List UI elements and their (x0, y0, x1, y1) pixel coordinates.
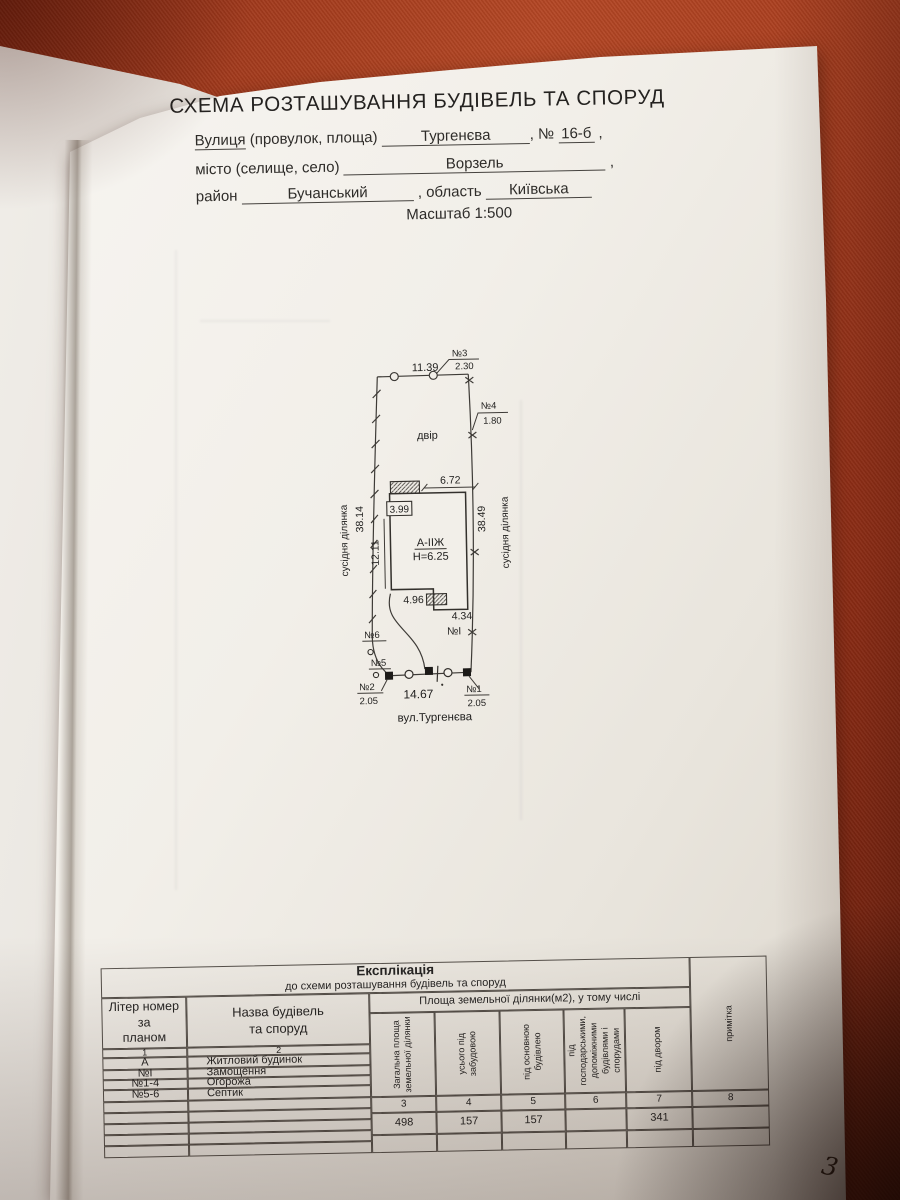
col-header-main-building: під основною будівлею (499, 1009, 565, 1094)
empty-cell (566, 1130, 627, 1149)
col-number: 7 (626, 1091, 692, 1108)
porch-top (390, 481, 419, 494)
value-yard: 341 (626, 1107, 692, 1130)
marker-3: №3 2.30 (436, 348, 479, 374)
table-title: Експлікація (356, 963, 434, 979)
page-title: СХЕМА РОЗТАШУВАННЯ БУДІВЕЛЬ ТА СПОРУД (82, 84, 752, 121)
document-content: СХЕМА РОЗТАШУВАННЯ БУДІВЕЛЬ ТА СПОРУД Ву… (82, 76, 773, 1169)
explication-table: Експлікація до схеми розташування будіве… (101, 956, 771, 1159)
empty-cell (693, 1128, 770, 1147)
dim-bottom-right-wing: 4.34 (452, 610, 473, 622)
dim-building-top: 6.72 (421, 474, 478, 491)
comma: , (610, 153, 614, 170)
dim-top: 11.39 (412, 362, 439, 375)
col-header-note: примітка (689, 956, 769, 1091)
svg-text:2.05: 2.05 (359, 696, 378, 707)
district-label: район (196, 188, 238, 206)
svg-text:№2: №2 (359, 682, 375, 693)
comma: , (598, 125, 602, 142)
dim-annex: 3.99 (390, 504, 410, 515)
paving-label: №I (447, 625, 461, 637)
city-value: Ворзель (344, 152, 606, 175)
empty-cell (104, 1145, 189, 1159)
building-height-label: Н=6.25 (413, 551, 449, 564)
marker-2: №2 2.05 (357, 680, 388, 708)
svg-text:№3: №3 (452, 348, 468, 359)
street-line: Вулиця (провулок, площа) Тургенєва, № 16… (83, 122, 753, 153)
city-label: місто (селище, село) (195, 159, 340, 179)
value-main-building: 157 (501, 1109, 565, 1132)
value-built-total: 157 (436, 1111, 501, 1134)
building-label: А-ІІЖ (417, 537, 445, 550)
col-number: 6 (565, 1092, 626, 1109)
gate-circle (390, 373, 398, 381)
value-total-area: 498 (371, 1112, 436, 1135)
empty-cell (189, 1141, 372, 1157)
street-label-rest: (провулок, площа) (245, 129, 377, 149)
site-plan-drawing: 11.39 №3 2.30 №4 1.80 двір 3.99 А (315, 335, 567, 734)
region-label: , область (418, 183, 482, 201)
empty-cell (372, 1134, 437, 1153)
col-number: 3 (371, 1096, 436, 1113)
street-name-label: вул.Тургенєва (397, 711, 472, 724)
region-value: Київська (486, 180, 592, 200)
value-outbuildings (565, 1108, 626, 1131)
col-number: 4 (436, 1095, 501, 1112)
building: 3.99 А-ІІЖ Н=6.25 (386, 480, 467, 610)
number-prefix: , № (530, 125, 555, 142)
city-line: місто (селище, село) Ворзель , (83, 150, 753, 181)
dim-bottom-left-wing: 4.96 (403, 594, 424, 606)
svg-text:№1: №1 (466, 684, 482, 695)
street-value: Тургенєва (382, 126, 530, 147)
empty-cell (627, 1129, 693, 1148)
svg-text:12.11: 12.11 (369, 540, 381, 566)
col-header-built-total: усього під забудовою (434, 1011, 501, 1096)
svg-text:№5: №5 (371, 658, 387, 669)
col-header-total-area: Загальна площа земельної ділянки (369, 1012, 436, 1097)
house-number-value: 16-б (558, 125, 594, 144)
street-fence (385, 665, 471, 687)
svg-text:№4: №4 (481, 401, 497, 412)
col-header-name: Назва будівель та споруд (186, 993, 370, 1048)
svg-text:2.05: 2.05 (467, 698, 486, 709)
marker-1: №1 2.05 (464, 676, 490, 709)
col-header-liter: Літер номер за планом (101, 997, 187, 1050)
col-number: 5 (501, 1093, 565, 1110)
col-header-outbuildings: під господарськими, допоміжними будівлям… (563, 1008, 626, 1093)
dim-right-boundary: 38.49 (476, 506, 489, 533)
neighbor-right-label: сусідня ділянка (500, 496, 512, 568)
empty-cell (437, 1133, 502, 1152)
yard-label: двір (417, 430, 438, 442)
col-header-yard: під двором (624, 1007, 692, 1092)
fence-ticks-left (365, 390, 385, 623)
empty-cell (502, 1131, 566, 1150)
street-label-underlined: Вулиця (195, 131, 246, 150)
district-value: Бучанський (241, 183, 413, 204)
col-number: 8 (692, 1090, 769, 1107)
svg-text:2.30: 2.30 (455, 361, 474, 372)
dim-building-left: 12.11 (369, 519, 385, 589)
marker-4: №4 1.80 (472, 400, 509, 430)
svg-text:6.72: 6.72 (440, 474, 461, 486)
photo-scene: СХЕМА РОЗТАШУВАННЯ БУДІВЕЛЬ ТА СПОРУД Ву… (0, 0, 900, 1200)
steps-bottom (426, 594, 446, 605)
svg-text:1.80: 1.80 (483, 416, 502, 427)
neighbor-left-label: сусідня ділянка (339, 504, 351, 576)
dim-left-boundary: 38.14 (354, 506, 367, 533)
dim-bottom: 14.67 (403, 687, 434, 702)
svg-text:№6: №6 (364, 630, 380, 641)
value-note (692, 1106, 769, 1129)
